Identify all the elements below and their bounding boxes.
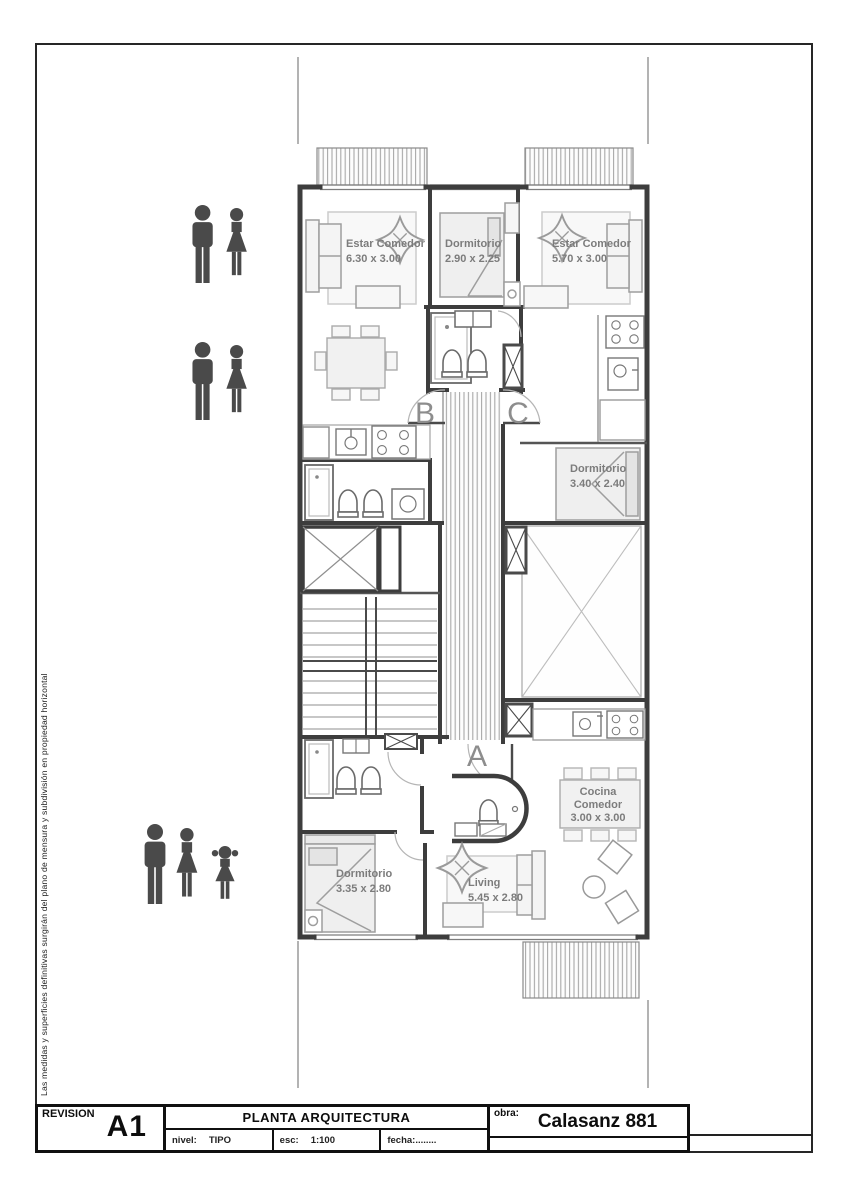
balcony-hatch-bottom-right [523, 942, 639, 998]
occupants [145, 205, 247, 904]
label-estar-comedor-c: Estar Comedor [552, 238, 632, 250]
air-light-patio [522, 526, 641, 697]
bathroom-a [305, 739, 381, 798]
kitchen-c [598, 315, 645, 442]
fecha-cell: fecha:........ [381, 1130, 487, 1150]
drawing-title: PLANTA ARQUITECTURA [166, 1107, 487, 1130]
title-block-center-cell: PLANTA ARQUITECTURA nivel: TIPO esc: 1:1… [166, 1107, 490, 1150]
label-dormitorio-c: Dormitorio [570, 463, 627, 475]
dim-dormitorio-b: 2.90 x 2.25 [445, 253, 500, 265]
toilet-icon [479, 800, 498, 826]
obra-empty-row [490, 1138, 687, 1150]
girl-icon [212, 846, 238, 899]
staircase [303, 597, 437, 735]
label-cocina-line2: Comedor [574, 799, 623, 811]
man-icon [192, 342, 212, 420]
label-dormitorio-a: Dormitorio [336, 868, 393, 880]
dim-estar-comedor-c: 5.70 x 3.00 [552, 253, 607, 265]
label-dormitorio-b: Dormitorio [445, 238, 502, 250]
title-block-subrow: nivel: TIPO esc: 1:100 fecha:........ [166, 1130, 487, 1150]
nivel-value: TIPO [209, 1135, 231, 1146]
nivel-label: nivel: [172, 1135, 197, 1146]
dim-living-a: 5.45 x 2.80 [468, 892, 523, 904]
label-cocina-line1: Cocina [580, 786, 618, 798]
obra-value: Calasanz 881 [490, 1111, 687, 1133]
occupants-family [145, 824, 239, 904]
title-block-revision-cell: REVISION A1 [38, 1107, 166, 1150]
kitchen-a [533, 709, 645, 740]
woman-icon [176, 828, 197, 897]
unit-label-b: B [415, 397, 435, 430]
label-living-a: Living [468, 877, 500, 889]
floor-plan: Estar Comedor 6.30 x 3.00 Dormitorio 2.9… [0, 0, 848, 1200]
escala-value: 1:100 [311, 1135, 335, 1146]
bidet-icon [363, 490, 383, 517]
toilet-icon [442, 350, 462, 377]
dining-table-b [315, 326, 397, 400]
bidet-icon [467, 350, 487, 377]
bathroom-b [305, 465, 424, 520]
toilet-icon [336, 767, 356, 794]
balcony-hatch-top-left [317, 148, 427, 185]
title-block: REVISION A1 PLANTA ARQUITECTURA nivel: T… [35, 1104, 690, 1153]
bathroom-top [431, 311, 491, 383]
titleblock-extension-line [687, 1134, 813, 1136]
bidet-icon [361, 767, 381, 794]
kitchen-b [303, 425, 430, 459]
dim-cocina: 3.00 x 3.00 [570, 812, 625, 824]
escala-cell: esc: 1:100 [274, 1130, 382, 1150]
revision-code: A1 [107, 1110, 147, 1144]
title-block-obra-cell: obra: Calasanz 881 [490, 1107, 687, 1150]
occupants-couple-2 [192, 342, 246, 420]
occupants-couple-1 [192, 205, 246, 283]
woman-icon [226, 208, 246, 275]
dim-estar-comedor-b: 6.30 x 3.00 [346, 253, 401, 265]
escala-label: esc: [280, 1135, 299, 1146]
man-icon [192, 205, 212, 283]
toilette-a [452, 776, 527, 841]
unit-label-c: C [507, 397, 529, 430]
obra-row: obra: Calasanz 881 [490, 1107, 687, 1138]
elevator-shaft [303, 527, 400, 591]
dim-dormitorio-a: 3.35 x 2.80 [336, 883, 391, 895]
woman-icon [226, 345, 246, 412]
toilet-icon [338, 490, 358, 517]
drawing-sheet: Las medidas y superficies definitivas su… [0, 0, 848, 1200]
balcony-hatch-top-right [525, 148, 633, 185]
fecha-label: fecha:........ [387, 1135, 436, 1146]
revision-label: REVISION [42, 1108, 95, 1120]
nivel-cell: nivel: TIPO [166, 1130, 274, 1150]
dim-dormitorio-c: 3.40 x 2.40 [570, 478, 625, 490]
label-estar-comedor-b: Estar Comedor [346, 238, 426, 250]
corridor-hatch [444, 392, 501, 740]
man-icon [145, 824, 166, 904]
unit-label-a: A [467, 740, 487, 773]
